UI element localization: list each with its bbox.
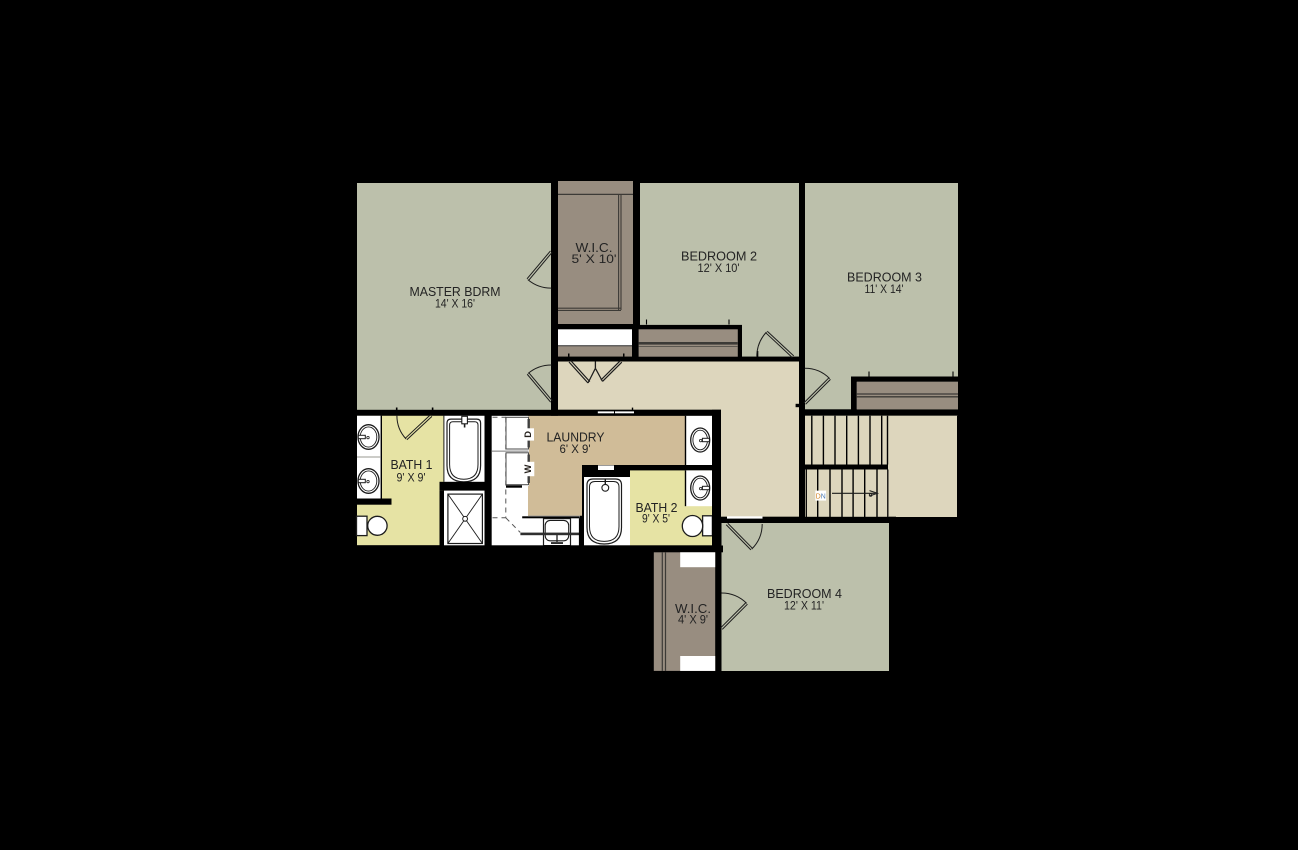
- svg-text:BATH 1: BATH 1: [391, 457, 433, 472]
- svg-text:12' X 10': 12' X 10': [698, 263, 740, 275]
- svg-text:BEDROOM 3: BEDROOM 3: [847, 270, 922, 285]
- svg-text:W.I.C.: W.I.C.: [576, 240, 613, 255]
- svg-text:MASTER BDRM: MASTER BDRM: [410, 284, 501, 299]
- svg-text:W: W: [523, 464, 533, 473]
- svg-text:LAUNDRY: LAUNDRY: [547, 430, 605, 445]
- svg-text:11' X 14': 11' X 14': [865, 284, 904, 296]
- svg-text:14' X 16': 14' X 16': [435, 299, 475, 311]
- svg-text:5' X 10': 5' X 10': [572, 254, 617, 266]
- svg-text:BEDROOM 4: BEDROOM 4: [767, 586, 842, 601]
- svg-text:4' X 9': 4' X 9': [678, 615, 708, 627]
- svg-text:9' X 9': 9' X 9': [397, 473, 426, 485]
- svg-text:6' X 9': 6' X 9': [560, 444, 591, 456]
- svg-text:9' X 5': 9' X 5': [642, 514, 670, 526]
- svg-text:D: D: [523, 431, 533, 438]
- svg-text:12' X 11': 12' X 11': [784, 601, 824, 613]
- svg-text:DN: DN: [816, 491, 826, 500]
- svg-text:BEDROOM 2: BEDROOM 2: [681, 249, 757, 264]
